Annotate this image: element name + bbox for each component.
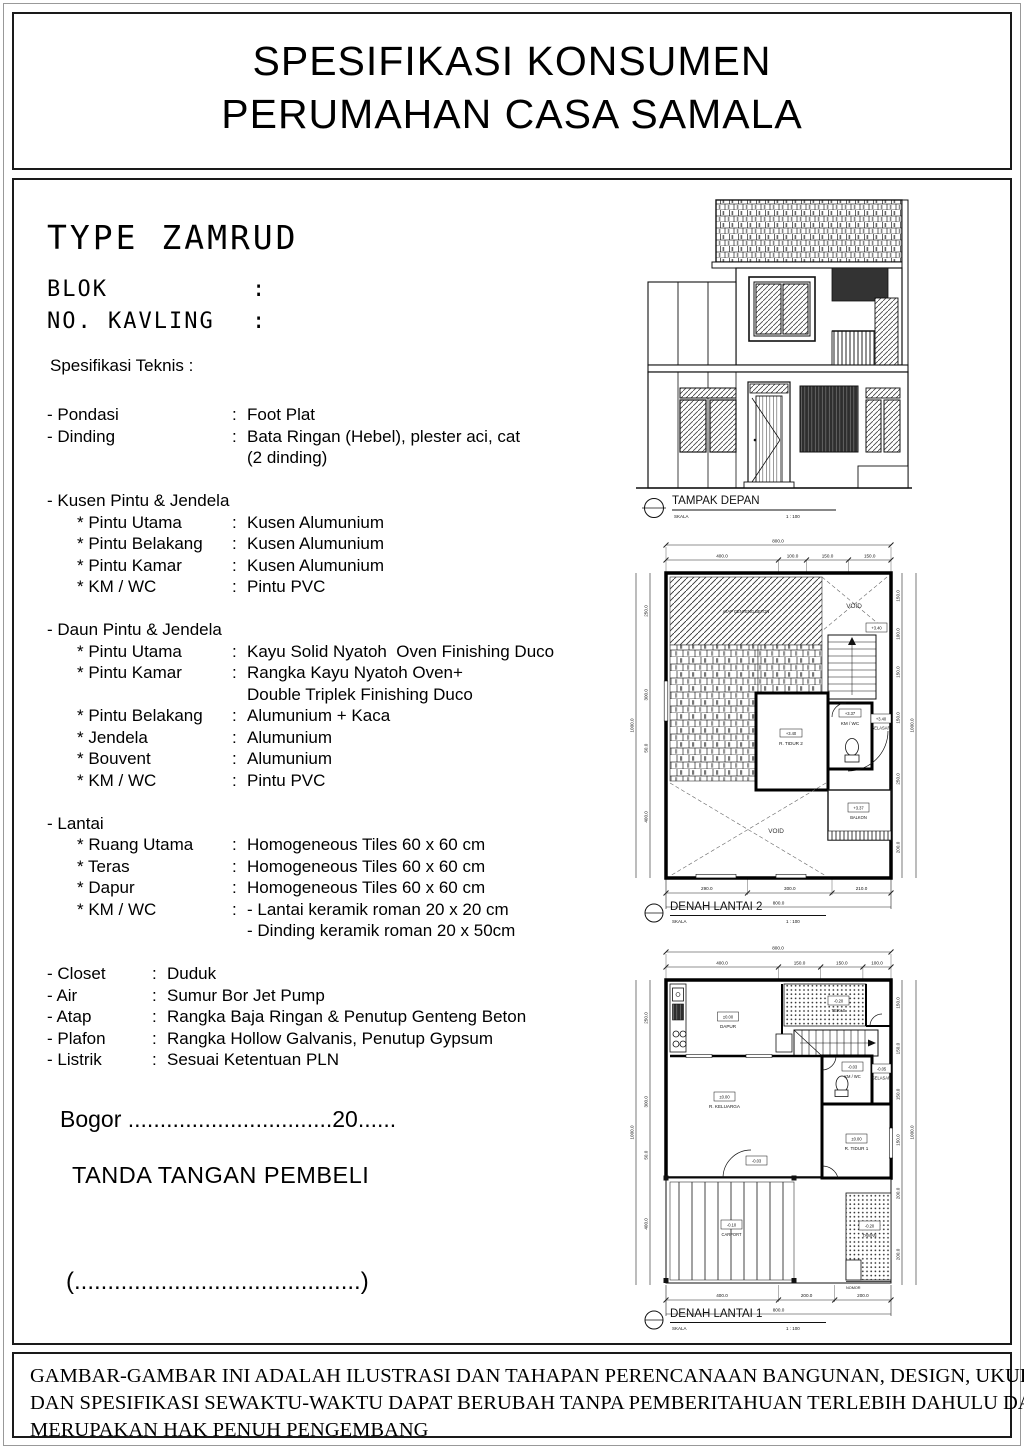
spec-head-daun: - Daun Pintu & Jendela xyxy=(47,619,622,641)
svg-text:1000.0: 1000.0 xyxy=(630,1125,635,1139)
svg-text:50.0: 50.0 xyxy=(644,743,649,752)
landing-level-box: +3.40 xyxy=(866,623,887,632)
svg-text:KM / WC: KM / WC xyxy=(844,1074,860,1079)
svg-text:50.0: 50.0 xyxy=(644,1150,649,1159)
svg-text:300.0: 300.0 xyxy=(644,689,649,701)
spec-row-closet: - Closet : Duduk xyxy=(47,963,622,985)
selasar-label: +3.40 SELASAR xyxy=(871,714,891,731)
svg-text:-0.03: -0.03 xyxy=(848,1065,858,1070)
svg-text:400.0: 400.0 xyxy=(644,811,649,823)
footer-line3: MERUPAKAN HAK PENUH PENGEMBANG xyxy=(30,1417,994,1444)
footer-line1: GAMBAR-GAMBAR INI ADALAH ILUSTRASI DAN T… xyxy=(30,1363,994,1390)
svg-text:150.0: 150.0 xyxy=(896,1088,901,1100)
svg-text:SKALA: SKALA xyxy=(672,919,687,924)
spec-row-plafon: - Plafon : Rangka Hollow Galvanis, Penut… xyxy=(47,1028,622,1050)
signature-name-line: (.......................................… xyxy=(66,1268,369,1296)
spec-row: * Pintu Kamar : Rangka Kayu Nyatoh Oven+ xyxy=(47,662,622,684)
spec-head-lantai: - Lantai xyxy=(47,813,622,835)
svg-text:100.0: 100.0 xyxy=(787,554,799,559)
denah-lantai1-drawing: 800.0 400.0 150.0 150.0 100.0 1000.0 250… xyxy=(626,938,926,1338)
svg-text:SKALA: SKALA xyxy=(672,1326,687,1331)
footer-line2: DAN SPESIFIKASI SEWAKTU-WAKTU DAPAT BERU… xyxy=(30,1390,994,1417)
lantai2-title-block: DENAH LANTAI 2 SKALA 1 : 100 xyxy=(645,901,826,924)
spec-row: * Bouvent : Alumunium xyxy=(47,748,622,770)
tampak-title: TAMPAK DEPAN xyxy=(672,495,760,507)
denah-lantai2-drawing: 800.0 400.0 100.0 150.0 150.0 1000.0 250… xyxy=(626,531,926,931)
teras-depan: -0.20 TERAS xyxy=(784,984,866,1026)
svg-text:TAMAN: TAMAN xyxy=(862,1233,876,1238)
svg-text:150.0: 150.0 xyxy=(896,1042,901,1054)
svg-text:R. KELUARGA: R. KELUARGA xyxy=(709,1104,741,1109)
void-bottom-label: VOID xyxy=(768,828,784,835)
lantai1-plan: ±0.00 DAPUR -0.20 TERAS xyxy=(664,980,893,1290)
svg-text:+3.37: +3.37 xyxy=(845,711,856,716)
svg-text:SELASAR: SELASAR xyxy=(872,1076,891,1081)
svg-text:CARPORT: CARPORT xyxy=(722,1232,742,1237)
svg-text:150.0: 150.0 xyxy=(836,961,848,966)
svg-text:150.0: 150.0 xyxy=(896,666,901,678)
kamar-mandi-lantai2: +3.37 KM / WC xyxy=(828,703,872,769)
svg-text:150.0: 150.0 xyxy=(896,590,901,602)
header-box: SPESIFIKASI KONSUMEN PERUMAHAN CASA SAMA… xyxy=(12,12,1012,170)
svg-text:150.0: 150.0 xyxy=(896,712,901,724)
kavling-row: NO. KAVLING : xyxy=(47,309,267,334)
signature-label: TANDA TANGAN PEMBELI xyxy=(72,1162,369,1189)
svg-text:400.0: 400.0 xyxy=(716,961,728,966)
svg-text:100.0: 100.0 xyxy=(896,628,901,640)
svg-text:+3.40: +3.40 xyxy=(871,626,882,631)
spec-row: * Teras : Homogeneous Tiles 60 x 60 cm xyxy=(47,856,622,878)
void-top-label: VOID xyxy=(846,603,862,610)
svg-text:-0.20: -0.20 xyxy=(865,1224,875,1229)
lantai2-title: DENAH LANTAI 2 xyxy=(670,901,762,913)
svg-text:200.0: 200.0 xyxy=(896,1187,901,1199)
blok-row: BLOK : xyxy=(47,277,267,302)
svg-text:+3.37: +3.37 xyxy=(853,806,864,811)
svg-text:1000.0: 1000.0 xyxy=(910,718,915,732)
spec-row: * Pintu Utama : Kayu Solid Nyatoh Oven F… xyxy=(47,641,622,663)
main-content-box: TYPE ZAMRUD BLOK : NO. KAVLING : Spesifi… xyxy=(12,178,1012,1345)
sink xyxy=(673,988,684,1001)
svg-text:800.0: 800.0 xyxy=(772,946,784,951)
type-title: TYPE ZAMRUD xyxy=(47,218,299,257)
nomor-post xyxy=(846,1260,861,1280)
spec-heading: Spesifikasi Teknis : xyxy=(50,356,193,376)
svg-text:1 : 100: 1 : 100 xyxy=(786,1326,800,1331)
svg-text:150.0: 150.0 xyxy=(896,1134,901,1146)
spec-row: * KM / WC : - Lantai keramik roman 20 x … xyxy=(47,899,622,921)
window-mark xyxy=(776,874,806,878)
balkon: +3.37 BALKON xyxy=(828,790,891,840)
kavling-colon: : xyxy=(252,309,267,334)
spec-row-dinding-cont: (2 dinding) xyxy=(47,447,622,469)
slatted-window xyxy=(800,386,858,452)
svg-text:-0.03: -0.03 xyxy=(752,1159,762,1164)
svg-text:KM / WC: KM / WC xyxy=(841,721,860,726)
roof-tile-area xyxy=(670,645,758,781)
blok-colon: : xyxy=(252,277,267,302)
svg-text:300.0: 300.0 xyxy=(784,886,796,891)
spec-row: * KM / WC : Pintu PVC xyxy=(47,770,622,792)
svg-text:210.0: 210.0 xyxy=(856,886,868,891)
svg-text:+3.40: +3.40 xyxy=(786,731,797,736)
svg-text:±0.00: ±0.00 xyxy=(723,1015,734,1020)
atap-label: ATAP GENTENG BETON xyxy=(723,609,770,614)
svg-text:400.0: 400.0 xyxy=(644,1218,649,1230)
signature-city-line: Bogor ................................20… xyxy=(60,1106,396,1133)
lantai1-title-block: DENAH LANTAI 1 SKALA 1 : 100 xyxy=(645,1308,826,1331)
stair-lantai1 xyxy=(776,1030,878,1056)
tampak-skala-label: SKALA xyxy=(674,514,689,519)
spec-row-listrik: - Listrik : Sesuai Ketentuan PLN xyxy=(47,1049,622,1071)
svg-text:200.0: 200.0 xyxy=(896,841,901,853)
side-stoop xyxy=(858,466,908,488)
svg-text:200.0: 200.0 xyxy=(801,1293,813,1298)
stair-landing xyxy=(776,1034,792,1052)
kavling-label: NO. KAVLING xyxy=(47,309,252,334)
svg-text:250.0: 250.0 xyxy=(896,773,901,785)
balcony-railing xyxy=(832,331,875,365)
spec-row: * KM / WC : Pintu PVC xyxy=(47,576,622,598)
dark-wall-panel xyxy=(832,268,888,301)
spec-row: * Jendela : Alumunium xyxy=(47,727,622,749)
blok-label: BLOK xyxy=(47,277,252,302)
window-mark xyxy=(889,1128,892,1158)
spec-row: * Pintu Kamar : Kusen Alumunium xyxy=(47,555,622,577)
taman: -0.20 TAMAN NOMOR xyxy=(846,1193,891,1290)
svg-text:-0.10: -0.10 xyxy=(727,1223,737,1228)
tampak-title-block: TAMPAK DEPAN SKALA 1 : 100 xyxy=(642,495,836,519)
ruang-tidur-1: ±0.00 R. TIDUR 1 xyxy=(822,1104,893,1178)
selasar-lantai1: -0.05 SELASAR xyxy=(872,1064,891,1081)
lantai2-plan: ATAP GENTENG BETON VOID xyxy=(664,573,891,878)
header-title-line2: PERUMAHAN CASA SAMALA xyxy=(14,88,1010,141)
spec-row: * Pintu Belakang : Alumunium + Kaca xyxy=(47,705,622,727)
svg-text:±0.00: ±0.00 xyxy=(719,1095,730,1100)
spec-row-atap: - Atap : Rangka Baja Ringan & Penutup Ge… xyxy=(47,1006,622,1028)
main-door xyxy=(748,382,790,486)
door-step xyxy=(744,482,794,488)
roof-tile-area2 xyxy=(758,645,822,693)
svg-text:800.0: 800.0 xyxy=(772,539,784,544)
svg-text:400.0: 400.0 xyxy=(716,554,728,559)
svg-text:400.0: 400.0 xyxy=(716,1293,728,1298)
svg-text:+3.40: +3.40 xyxy=(876,717,887,722)
back-level-box: -0.03 xyxy=(746,1156,767,1165)
window-mark xyxy=(664,681,668,721)
svg-text:TERAS: TERAS xyxy=(832,1008,846,1013)
header-title-line1: SPESIFIKASI KONSUMEN xyxy=(14,35,1010,88)
svg-text:SELASAR: SELASAR xyxy=(872,726,891,731)
svg-text:200.0: 200.0 xyxy=(896,1248,901,1260)
svg-text:250.0: 250.0 xyxy=(644,605,649,617)
spec-row: * Pintu Belakang : Kusen Alumunium xyxy=(47,533,622,555)
footer-disclaimer: GAMBAR-GAMBAR INI ADALAH ILUSTRASI DAN T… xyxy=(12,1352,1012,1438)
svg-text:200.0: 200.0 xyxy=(857,1293,869,1298)
svg-text:1 : 100: 1 : 100 xyxy=(786,919,800,924)
ruang-tidur-2: +3.40 R. TIDUR 2 xyxy=(756,693,828,790)
toilet xyxy=(846,739,859,756)
kamar-mandi-lantai1: -0.03 KM / WC xyxy=(822,1056,872,1104)
spec-row-pondasi: - Pondasi : Foot Plat xyxy=(47,404,622,426)
mid-wall-windows xyxy=(670,1055,822,1058)
window-mark xyxy=(696,874,736,878)
svg-text:1000.0: 1000.0 xyxy=(910,1125,915,1139)
svg-text:1000.0: 1000.0 xyxy=(630,718,635,732)
spec-row-cont: Double Triplek Finishing Duco xyxy=(47,684,622,706)
spec-row: * Dapur : Homogeneous Tiles 60 x 60 cm xyxy=(47,877,622,899)
spec-row-cont: - Dinding keramik roman 20 x 50cm xyxy=(47,920,622,942)
spec-row: * Pintu Utama : Kusen Alumunium xyxy=(47,512,622,534)
svg-text:-0.05: -0.05 xyxy=(877,1067,887,1072)
tampak-depan-drawing: TAMPAK DEPAN SKALA 1 : 100 xyxy=(628,186,918,531)
svg-text:BALKON: BALKON xyxy=(850,815,867,820)
carport: -0.10 CARPORT xyxy=(664,1176,797,1284)
tampak-scale-value: 1 : 100 xyxy=(786,514,800,519)
svg-text:800.0: 800.0 xyxy=(773,901,785,906)
svg-text:-0.20: -0.20 xyxy=(834,999,844,1004)
kitchen-grill xyxy=(673,1004,684,1020)
svg-text:290.0: 290.0 xyxy=(701,886,713,891)
nomor-label: NOMOR xyxy=(846,1286,861,1290)
elevation-ground-floor xyxy=(636,365,912,488)
elevation-carport-columns xyxy=(648,282,736,365)
spec-head-kusen: - Kusen Pintu & Jendela xyxy=(47,490,622,512)
spec-list: - Pondasi : Foot Plat - Dinding : Bata R… xyxy=(47,404,622,1071)
svg-text:150.0: 150.0 xyxy=(794,961,806,966)
svg-text:150.0: 150.0 xyxy=(896,997,901,1009)
elevation-second-floor xyxy=(736,268,902,365)
spec-row-dinding: - Dinding : Bata Ringan (Hebel), plester… xyxy=(47,426,622,448)
svg-text:DAPUR: DAPUR xyxy=(720,1024,737,1029)
svg-text:R. TIDUR 2: R. TIDUR 2 xyxy=(779,741,803,746)
svg-text:800.0: 800.0 xyxy=(773,1308,785,1313)
svg-text:150.0: 150.0 xyxy=(864,554,876,559)
svg-text:150.0: 150.0 xyxy=(822,554,834,559)
lantai1-title: DENAH LANTAI 1 xyxy=(670,1308,762,1320)
svg-text:R. TIDUR 1: R. TIDUR 1 xyxy=(845,1146,869,1151)
svg-text:300.0: 300.0 xyxy=(644,1096,649,1108)
svg-text:100.0: 100.0 xyxy=(871,961,883,966)
spec-row-air: - Air : Sumur Bor Jet Pump xyxy=(47,985,622,1007)
svg-text:±0.00: ±0.00 xyxy=(851,1137,862,1142)
svg-text:250.0: 250.0 xyxy=(644,1012,649,1024)
spec-row: * Ruang Utama : Homogeneous Tiles 60 x 6… xyxy=(47,834,622,856)
balcony-door xyxy=(875,298,898,365)
stair xyxy=(828,635,876,699)
